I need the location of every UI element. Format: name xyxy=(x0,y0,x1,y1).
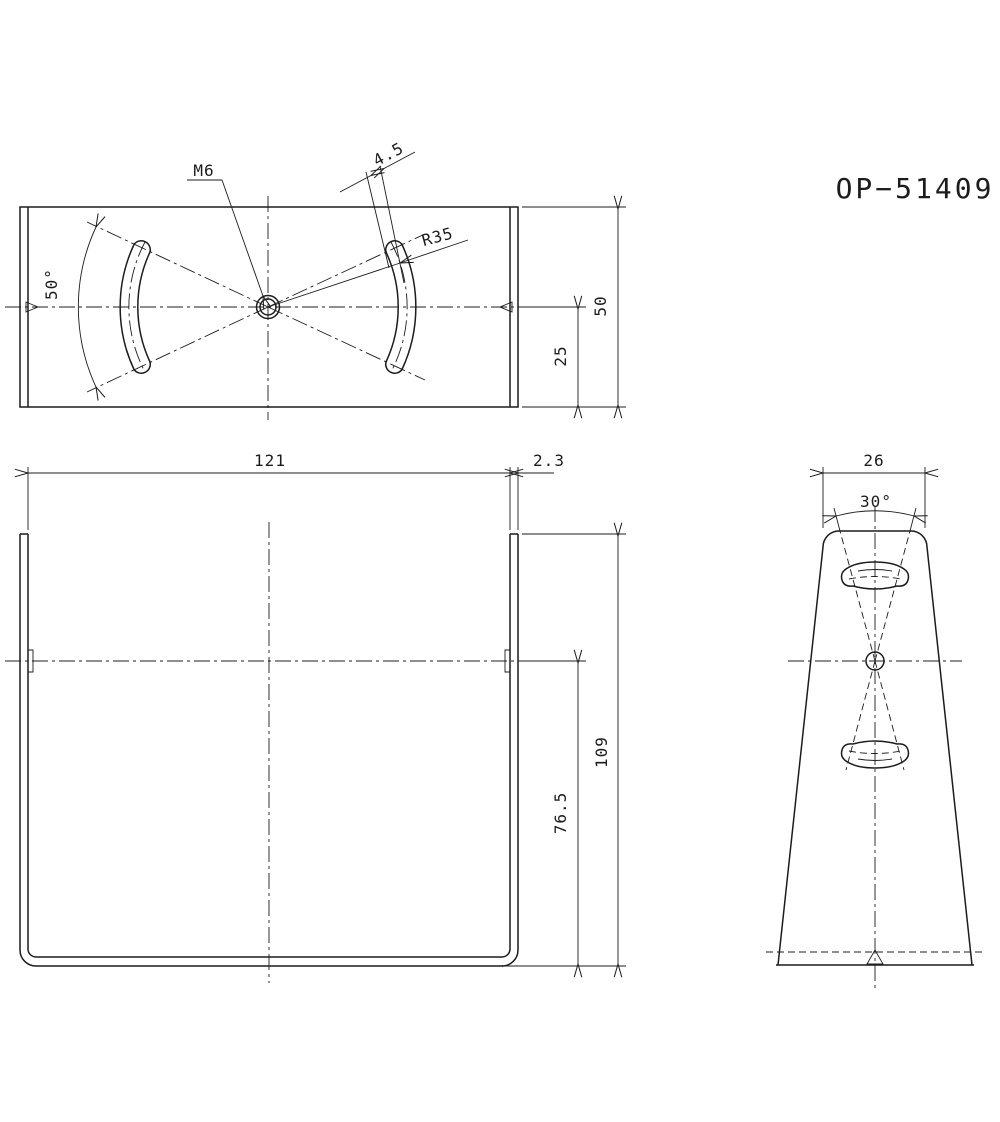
side-top-slot-hidden-line xyxy=(849,577,901,580)
drawing-sheet: OP−51409 50° M6 R35 xyxy=(0,0,1000,1122)
cone-line-lower-right xyxy=(875,661,904,770)
ray-lower-left xyxy=(87,307,268,392)
dim-top-width-label: 26 xyxy=(863,451,884,470)
front-left-wall-inner xyxy=(28,534,36,957)
dim-slot-width-label: 4.5 xyxy=(370,138,407,170)
side-right-edge xyxy=(911,531,972,965)
dim-cone-angle-label: 30° xyxy=(860,492,892,511)
front-view: 121 2.3 109 76.5 xyxy=(5,451,626,983)
drawing-number: OP−51409 xyxy=(836,172,995,205)
dim-depth-label: 50 xyxy=(591,295,610,316)
cone-line-upper-right xyxy=(875,531,910,661)
cone-line-upper-left xyxy=(840,531,875,661)
dim-slot-width-ext1 xyxy=(366,172,389,268)
dim-thickness-label: 2.3 xyxy=(533,451,565,470)
top-view: 50° M6 R35 4.5 50 25 xyxy=(5,138,626,420)
cad-drawing: OP−51409 50° M6 R35 xyxy=(0,0,1000,1122)
m6-leader-line xyxy=(222,180,263,296)
dim-25-label: 25 xyxy=(551,345,570,366)
dim-height-label: 109 xyxy=(592,736,611,768)
cone-line-lower-left xyxy=(846,661,875,770)
ray-lower-right xyxy=(268,307,425,380)
side-left-edge xyxy=(778,531,839,965)
cone-ext-left xyxy=(834,508,840,531)
dim-thread-label: M6 xyxy=(193,161,214,180)
r35-leader-arrow xyxy=(268,263,400,307)
dim-width-label: 121 xyxy=(254,451,286,470)
front-right-wall-inner xyxy=(502,534,510,957)
dim-slot-width-line1 xyxy=(340,176,371,193)
ray-upper-left xyxy=(87,222,268,307)
dim-slot-angle-label: 50° xyxy=(42,268,61,300)
dim-center-height-label: 76.5 xyxy=(551,792,570,835)
side-view: 30° 26 xyxy=(766,451,984,988)
cone-ext-right xyxy=(910,508,916,531)
